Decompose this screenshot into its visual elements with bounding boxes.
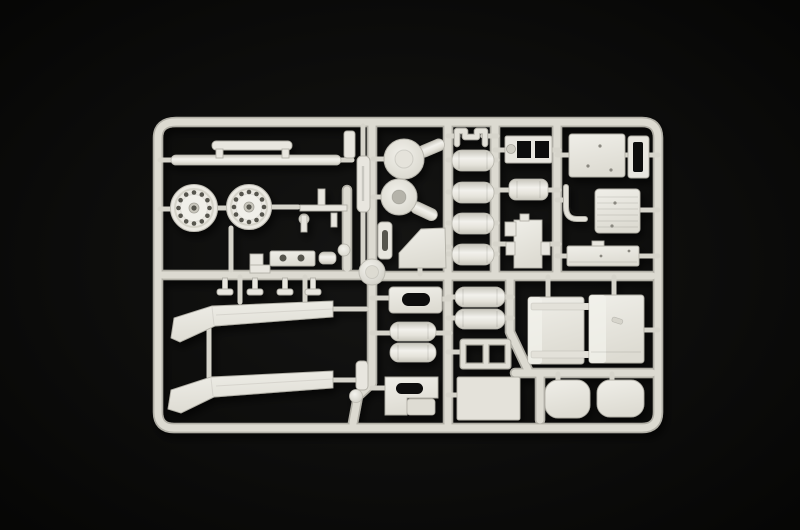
wheel-hub-part-1 (171, 185, 218, 232)
floor-panel-part (457, 377, 520, 420)
seat-cushion-part-1 (545, 380, 590, 418)
drilled-plate-part (270, 251, 315, 266)
roof-panel-part (569, 134, 625, 177)
sprue-photo: Injection-molded model kit sprue with wh… (0, 0, 800, 530)
door-ring-part (628, 136, 649, 178)
air-tank-part-1 (455, 287, 505, 307)
slotted-plate-part (378, 222, 392, 259)
air-tank-part-2 (455, 309, 505, 329)
exhaust-strip-part (356, 361, 368, 390)
cab-door-part-1 (528, 297, 590, 364)
ribbed-panel-part (595, 189, 640, 233)
corner-bracket-part (344, 131, 355, 158)
injection-knob-bottom (350, 390, 363, 403)
window-frame-part (505, 136, 552, 163)
sprue-photo-canvas (0, 0, 800, 530)
small-plate-part (407, 399, 435, 415)
vertical-strip-part (357, 156, 370, 212)
wheel-hub-part-2 (227, 185, 272, 230)
injection-knob-center (359, 259, 385, 285)
front-bumper-part (171, 155, 341, 165)
seat-cushion-part-2 (597, 380, 644, 417)
reservoir-block-part (509, 179, 548, 200)
oval-plate-part-1 (389, 287, 442, 313)
cab-door-part-2 (589, 295, 644, 363)
